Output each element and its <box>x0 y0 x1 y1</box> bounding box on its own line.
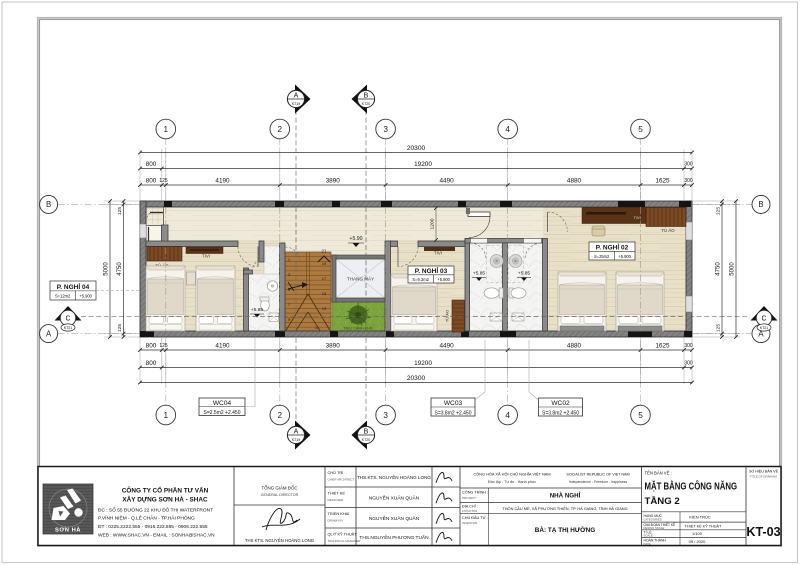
svg-text:TỦ ÁO: TỦ ÁO <box>661 228 675 233</box>
svg-text:GENERAL DIRECTOR: GENERAL DIRECTOR <box>261 493 299 497</box>
svg-text:B: B <box>46 200 51 209</box>
svg-text:300: 300 <box>684 162 693 168</box>
svg-text:5: 5 <box>638 125 643 134</box>
svg-text:TỦ ÁO: TỦ ÁO <box>445 310 450 322</box>
svg-text:125: 125 <box>716 207 722 215</box>
svg-text:A: A <box>46 329 52 338</box>
svg-text:TECHNICAL MANAGER: TECHNICAL MANAGER <box>328 539 362 543</box>
svg-text:THS.KTS. NGUYỄN HOÀNG LONG: THS.KTS. NGUYỄN HOÀNG LONG <box>357 474 431 480</box>
svg-text:+5.90: +5.90 <box>349 236 362 242</box>
svg-text:KT-03: KT-03 <box>746 525 780 539</box>
svg-text:B: B <box>364 429 369 436</box>
svg-text:SỐ HIỆU BẢN VẼ: SỐ HIỆU BẢN VẼ <box>749 469 779 474</box>
svg-text:THÔN CẦU MÈ, XÃ PHƯƠNG THIỆN,: THÔN CẦU MÈ, XÃ PHƯƠNG THIỆN, TP. HÀ GIA… <box>502 506 627 511</box>
svg-text:5000: 5000 <box>730 262 736 276</box>
svg-text:TIVI: TIVI <box>202 254 210 259</box>
svg-text:4880: 4880 <box>567 178 582 185</box>
svg-text:A: A <box>294 429 299 436</box>
svg-text:3: 3 <box>383 125 388 134</box>
svg-text:125: 125 <box>117 324 123 332</box>
svg-text:19200: 19200 <box>414 360 432 367</box>
svg-text:PROJECT: PROJECT <box>462 496 476 500</box>
svg-text:1200: 1200 <box>430 218 436 229</box>
svg-text:TRIỂN KHAI: TRIỂN KHAI <box>328 511 350 516</box>
svg-text:CỘNG HÒA XÃ HỘI CHỦ NGHĨA VIỆT: CỘNG HÒA XÃ HỘI CHỦ NGHĨA VIỆT NAM <box>473 472 550 477</box>
svg-text:S=3.8m2 +2.450: S=3.8m2 +2.450 <box>542 411 579 417</box>
svg-text:MẶT BẰNG CÔNG NĂNG: MẶT BẰNG CÔNG NĂNG <box>645 481 738 493</box>
svg-text:1625: 1625 <box>655 343 670 350</box>
svg-text:INVESTOR: INVESTOR <box>462 521 478 525</box>
svg-text:4750: 4750 <box>117 262 123 276</box>
svg-text:CATEGORIES: CATEGORIES <box>644 518 662 522</box>
svg-text:CÔNG TRÌNH :: CÔNG TRÌNH : <box>462 490 488 495</box>
svg-text:2: 2 <box>278 125 283 134</box>
svg-text:15: 15 <box>322 291 327 296</box>
svg-text:4490: 4490 <box>439 343 454 350</box>
svg-text:TIỂU CẢNH KHÔ: TIỂU CẢNH KHÔ <box>343 326 373 331</box>
svg-text:LOCATION: LOCATION <box>462 509 477 513</box>
svg-text:4490: 4490 <box>439 178 454 185</box>
svg-text:+5.900: +5.900 <box>437 277 450 282</box>
svg-text:DRAWN BY: DRAWN BY <box>328 519 344 523</box>
svg-text:+5.900: +5.900 <box>79 294 92 299</box>
svg-text:S=25m2: S=25m2 <box>594 254 610 259</box>
svg-text:NGUYỄN XUÂN QUÂN: NGUYỄN XUÂN QUÂN <box>369 515 420 522</box>
svg-text:4: 4 <box>505 125 510 134</box>
svg-text:4190: 4190 <box>215 178 230 185</box>
svg-text:S=12m2: S=12m2 <box>55 294 71 299</box>
svg-text:A: A <box>294 93 299 100</box>
svg-text:THIẾT KẾ: THIẾT KẾ <box>328 491 346 496</box>
svg-text:800: 800 <box>146 161 157 168</box>
svg-text:THS KTS. NGUYỄN HOÀNG LONG: THS KTS. NGUYỄN HOÀNG LONG <box>245 538 315 543</box>
svg-text:KT21: KT21 <box>760 326 769 330</box>
svg-text:THANG MÁY: THANG MÁY <box>347 276 374 282</box>
svg-text:3: 3 <box>383 411 388 420</box>
svg-text:300: 300 <box>684 361 693 367</box>
svg-text:19200: 19200 <box>414 161 432 168</box>
svg-text:B: B <box>758 200 763 209</box>
svg-text:+5.85: +5.85 <box>251 307 263 313</box>
svg-text:TITLE OF DRAWING: TITLE OF DRAWING <box>750 475 778 479</box>
svg-text:P. NGHỈ 04: P. NGHỈ 04 <box>57 282 90 291</box>
svg-text:NHÀ NGHỈ: NHÀ NGHỈ <box>550 493 581 500</box>
svg-text:19: 19 <box>322 261 327 266</box>
svg-text:TÊN BẢN VẼ :: TÊN BẢN VẼ : <box>645 471 672 476</box>
svg-text:1: 1 <box>164 125 169 134</box>
svg-text:BÀ: TẠ THỊ HƯỜNG: BÀ: TẠ THỊ HƯỜNG <box>535 525 595 534</box>
svg-text:SCALE: SCALE <box>644 534 653 538</box>
svg-text:S=3.8m2 +2.450: S=3.8m2 +2.450 <box>435 411 472 417</box>
svg-text:CHỦ TRÌ: CHỦ TRÌ <box>328 470 344 475</box>
svg-text:09 / 2020: 09 / 2020 <box>689 539 706 544</box>
svg-text:WEB : WWW.SHAC.VN - EMAIL : SO: WEB : WWW.SHAC.VN - EMAIL : SONHA@SHAC.V… <box>98 533 215 539</box>
svg-text:P. NGHỈ 03: P. NGHỈ 03 <box>415 266 448 275</box>
svg-text:4880: 4880 <box>567 343 582 350</box>
svg-text:KT20: KT20 <box>362 438 371 442</box>
svg-text:800: 800 <box>146 343 157 350</box>
svg-text:3890: 3890 <box>326 343 341 350</box>
svg-text:KT20: KT20 <box>362 102 371 106</box>
svg-text:S=9.3m2: S=9.3m2 <box>412 277 429 282</box>
svg-text:3890: 3890 <box>326 178 341 185</box>
svg-text:1/100: 1/100 <box>692 531 703 536</box>
svg-text:P. NGHỈ 02: P. NGHỈ 02 <box>596 243 629 252</box>
svg-text:20300: 20300 <box>407 145 426 152</box>
svg-text:+5.85: +5.85 <box>473 271 485 277</box>
svg-text:+5.85: +5.85 <box>518 271 530 277</box>
svg-text:TIVI: TIVI <box>633 215 640 220</box>
svg-text:+5.900: +5.900 <box>618 254 631 259</box>
svg-text:800: 800 <box>146 178 157 185</box>
svg-text:WC02: WC02 <box>551 400 570 407</box>
svg-text:TẦNG 2: TẦNG 2 <box>645 496 680 507</box>
svg-text:1625: 1625 <box>655 178 670 185</box>
svg-text:300: 300 <box>684 178 693 184</box>
svg-text:NGUYỄN XUÂN QUÂN: NGUYỄN XUÂN QUÂN <box>369 494 420 501</box>
svg-text:DATE: DATE <box>644 542 651 546</box>
svg-text:KT19: KT19 <box>292 102 301 106</box>
svg-text:20300: 20300 <box>407 375 426 382</box>
svg-text:SƠN HÀ: SƠN HÀ <box>55 527 81 534</box>
svg-text:C: C <box>65 316 70 323</box>
svg-text:1: 1 <box>164 411 169 420</box>
svg-text:125: 125 <box>716 324 722 332</box>
svg-text:XÂY DỰNG SƠN HÀ - SHAC: XÂY DỰNG SƠN HÀ - SHAC <box>122 495 208 504</box>
svg-text:SOCIALIST REPUBLIC OF VIET NAM: SOCIALIST REPUBLIC OF VIET NAM <box>566 473 629 477</box>
svg-text:ĐỊA CHỈ :: ĐỊA CHỈ : <box>462 504 478 509</box>
svg-text:125: 125 <box>159 343 168 349</box>
svg-text:TIVI: TIVI <box>434 251 442 256</box>
svg-text:800: 800 <box>146 360 157 367</box>
svg-text:21: 21 <box>322 249 327 254</box>
svg-text:WC04: WC04 <box>213 400 232 407</box>
svg-text:DESIGNED: DESIGNED <box>328 498 345 502</box>
svg-text:5: 5 <box>638 411 643 420</box>
svg-text:QL/Ý KỸ THUẬT: QL/Ý KỸ THUẬT <box>328 532 358 537</box>
svg-text:ĐT : 0225.2222.555 - 0916.222.: ĐT : 0225.2222.555 - 0916.222.555 - 0906… <box>98 524 208 530</box>
svg-text:KT19: KT19 <box>292 438 301 442</box>
svg-text:S=2.5m2 +2.450: S=2.5m2 +2.450 <box>204 410 241 416</box>
svg-text:ĐC : SỐ 55 ĐƯỜNG 22 KHU ĐÔ THỊ: ĐC : SỐ 55 ĐƯỜNG 22 KHU ĐÔ THỊ WATERFRON… <box>98 507 213 514</box>
svg-text:13: 13 <box>322 306 327 311</box>
svg-text:B: B <box>364 93 369 100</box>
svg-text:WC03: WC03 <box>444 400 463 407</box>
svg-text:300: 300 <box>684 343 693 349</box>
svg-text:5000: 5000 <box>104 262 110 276</box>
svg-text:KIẾN TRÚC: KIẾN TRÚC <box>689 515 711 520</box>
svg-text:Độc lập - Tự do - Hạnh phúc: Độc lập - Tự do - Hạnh phúc <box>488 480 536 484</box>
svg-text:17: 17 <box>322 276 327 281</box>
svg-text:THIẾT KẾ KỸ THUẬT: THIẾT KẾ KỸ THUẬT <box>685 524 722 529</box>
svg-text:Independence - Freedom - happi: Independence - Freedom - happiness <box>569 480 628 484</box>
svg-text:C: C <box>761 316 766 323</box>
svg-text:CHIEF ARCHITECT: CHIEF ARCHITECT <box>328 478 355 482</box>
svg-text:KT21: KT21 <box>64 326 73 330</box>
svg-text:4: 4 <box>505 411 510 420</box>
svg-text:CHỦ ĐẦU TƯ :: CHỦ ĐẦU TƯ : <box>462 515 488 520</box>
svg-text:4190: 4190 <box>215 343 230 350</box>
svg-text:4750: 4750 <box>716 262 722 276</box>
svg-text:TỔNG GIÁM ĐỐC: TỔNG GIÁM ĐỐC <box>261 486 297 491</box>
svg-text:125: 125 <box>159 178 168 184</box>
svg-text:125: 125 <box>117 207 123 215</box>
svg-text:THS.NGUYỄN PHƯƠNG TUẤN: THS.NGUYỄN PHƯƠNG TUẤN <box>359 534 429 541</box>
svg-text:2: 2 <box>278 411 283 420</box>
